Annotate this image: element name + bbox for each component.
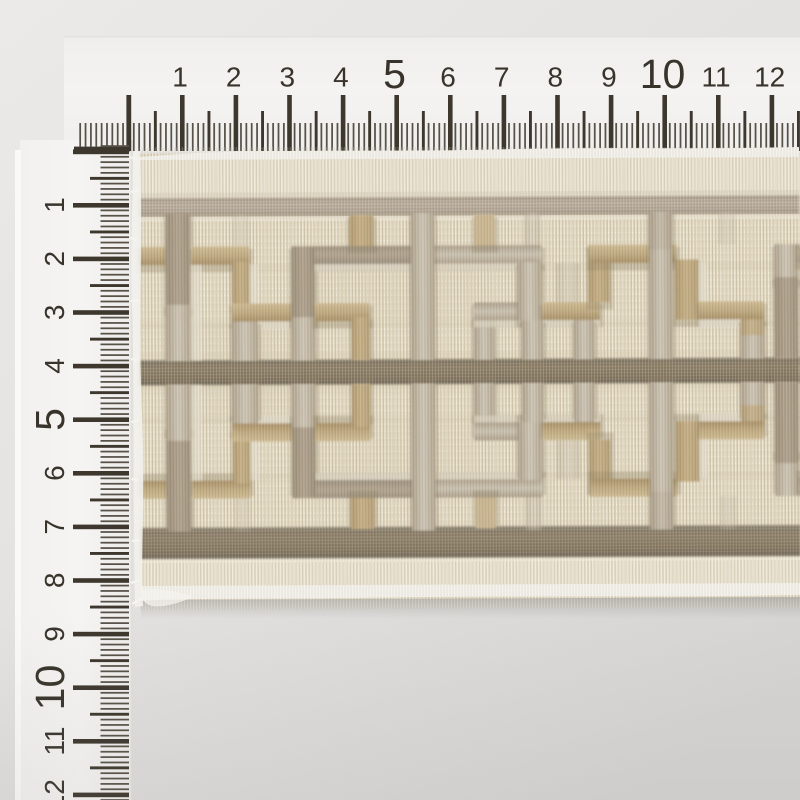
svg-text:2: 2 xyxy=(226,62,242,93)
svg-text:5: 5 xyxy=(383,51,406,97)
svg-text:10: 10 xyxy=(640,51,686,97)
svg-text:8: 8 xyxy=(39,573,70,589)
svg-text:1: 1 xyxy=(39,197,70,213)
svg-text:6: 6 xyxy=(39,465,70,481)
svg-text:3: 3 xyxy=(39,305,70,321)
svg-text:4: 4 xyxy=(333,62,349,93)
svg-text:9: 9 xyxy=(601,62,617,93)
svg-text:7: 7 xyxy=(494,62,510,93)
svg-text:4: 4 xyxy=(39,358,70,374)
svg-text:2: 2 xyxy=(39,251,70,267)
svg-text:11: 11 xyxy=(702,62,731,93)
svg-text:8: 8 xyxy=(548,62,564,93)
svg-text:1: 1 xyxy=(172,62,188,93)
svg-text:5: 5 xyxy=(27,408,73,431)
svg-text:6: 6 xyxy=(440,62,456,93)
svg-text:12: 12 xyxy=(754,62,785,93)
svg-text:3: 3 xyxy=(280,62,296,93)
svg-text:7: 7 xyxy=(39,519,70,535)
